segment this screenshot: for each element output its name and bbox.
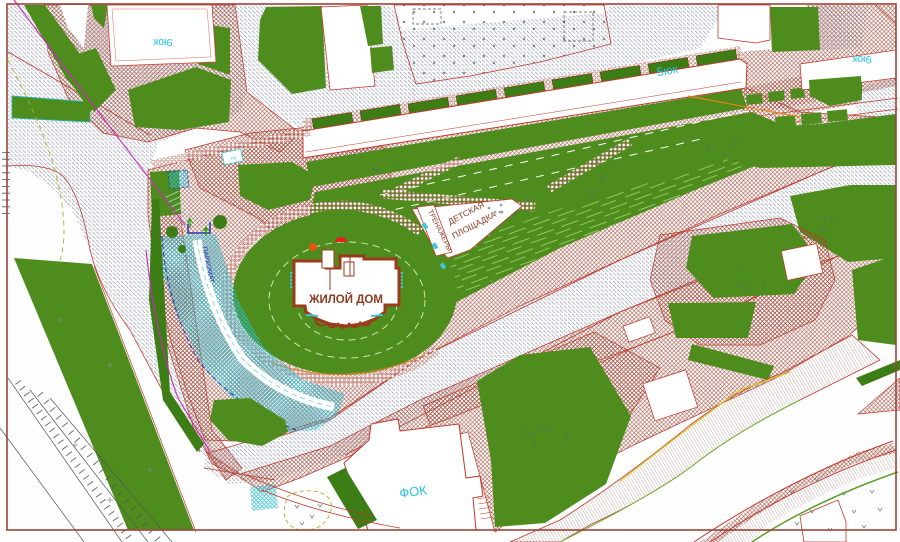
svg-text:9юк: 9юк — [153, 36, 172, 48]
svg-text:9юк: 9юк — [852, 53, 871, 65]
svg-text:ЖИЛОЙ ДОМ: ЖИЛОЙ ДОМ — [308, 293, 383, 306]
